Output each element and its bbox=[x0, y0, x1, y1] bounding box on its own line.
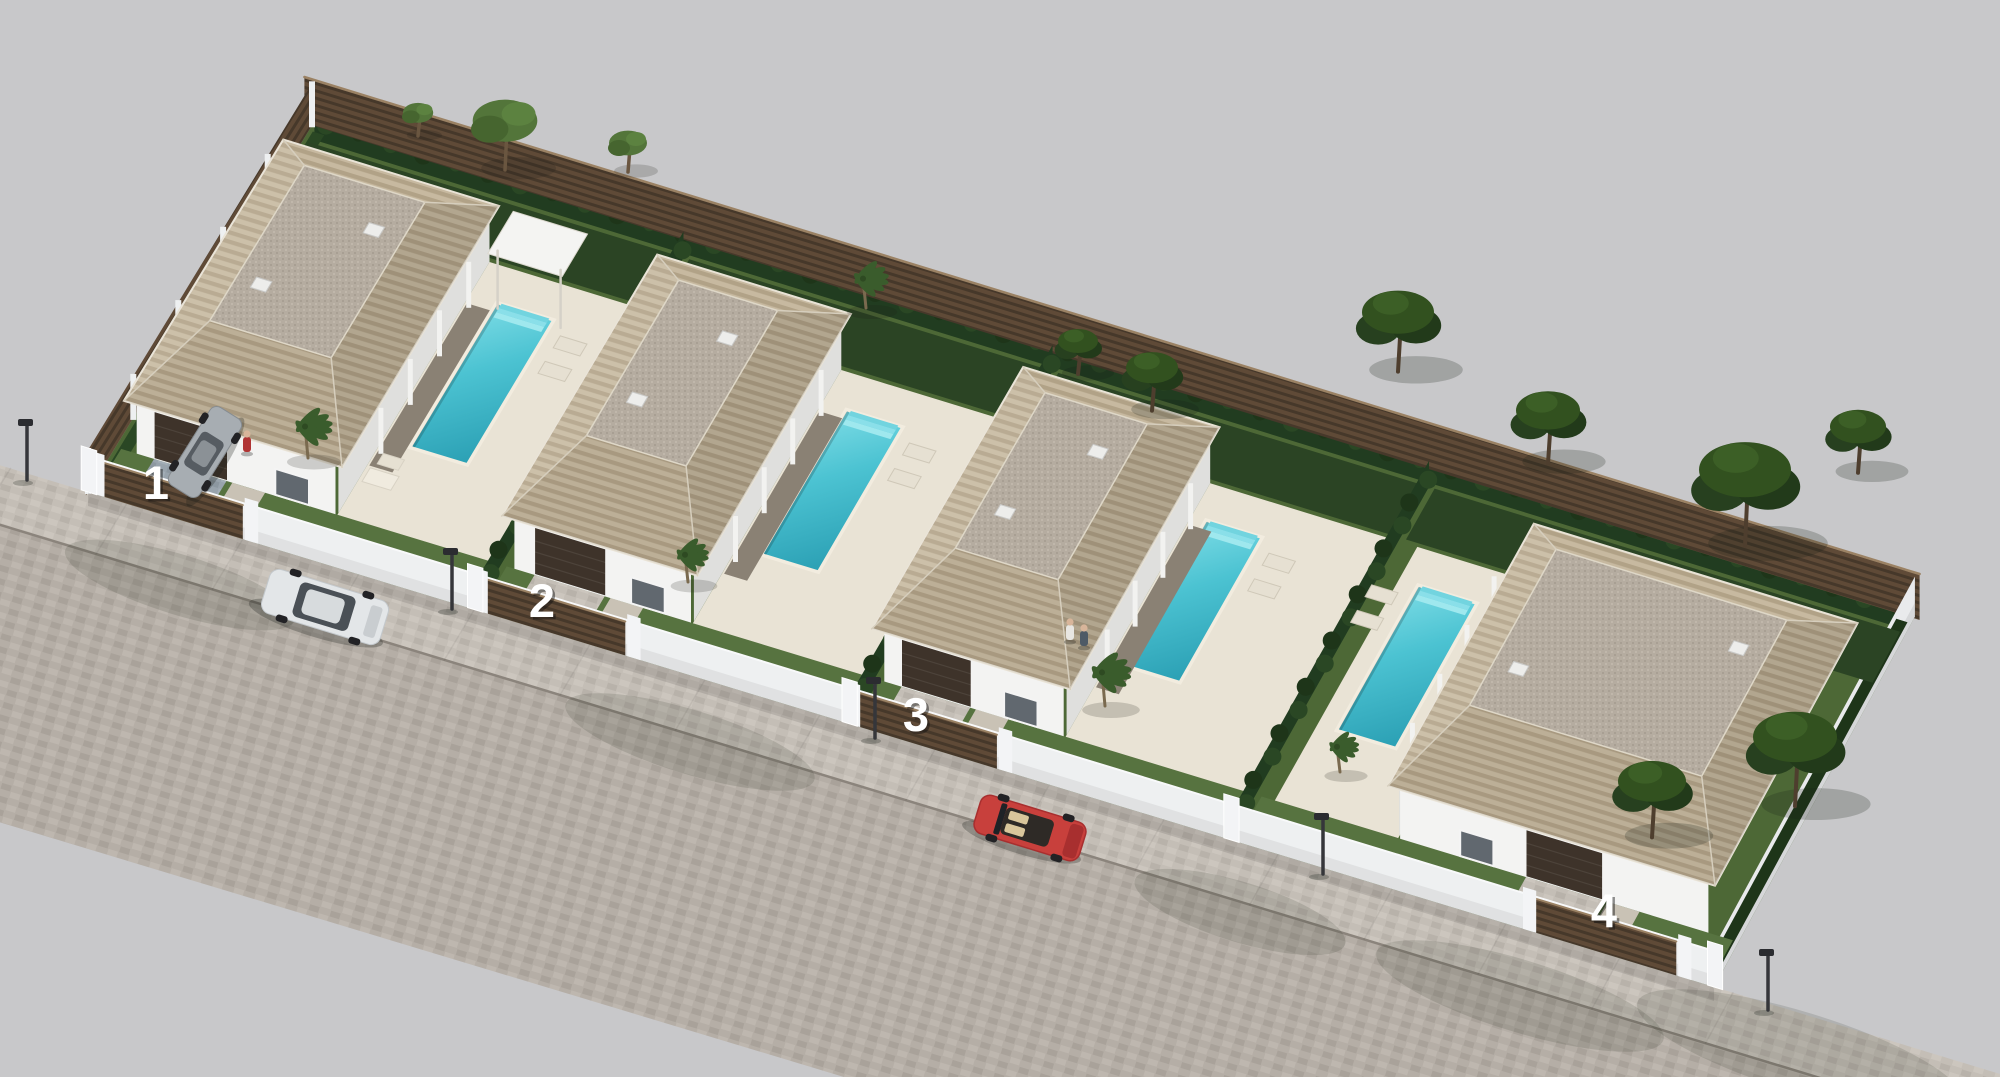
wall-pillar bbox=[842, 678, 857, 727]
porch-column bbox=[437, 310, 442, 356]
hedge-bush bbox=[1400, 494, 1418, 512]
person-shadow bbox=[1064, 640, 1076, 645]
tree-foliage bbox=[608, 140, 630, 156]
streetlight-head bbox=[443, 548, 458, 555]
tree-foliage bbox=[1713, 443, 1759, 472]
person-body bbox=[1066, 625, 1074, 640]
porch-column bbox=[466, 262, 471, 308]
wall-pillar bbox=[1523, 887, 1536, 933]
tree-foliage bbox=[416, 104, 432, 115]
streetlight-head bbox=[1759, 949, 1774, 956]
tree-shadow bbox=[1836, 461, 1909, 482]
palm-crown bbox=[682, 552, 688, 558]
tree-foliage bbox=[1064, 330, 1084, 343]
tree-shadow bbox=[1324, 770, 1367, 782]
tree-shadow bbox=[1625, 823, 1713, 849]
wall-pillar bbox=[468, 564, 483, 613]
tree-foliage bbox=[1134, 353, 1160, 370]
tree-foliage bbox=[1628, 762, 1662, 784]
streetlight-head bbox=[866, 677, 881, 684]
tree-shadow bbox=[1708, 526, 1828, 561]
tree-foliage bbox=[402, 110, 420, 123]
person-body bbox=[1080, 631, 1088, 646]
tree-shadow bbox=[287, 455, 341, 470]
tree-foliage bbox=[1766, 713, 1808, 740]
hedge-bush bbox=[490, 541, 508, 559]
tree-foliage bbox=[626, 132, 646, 146]
hedge-bush bbox=[1393, 516, 1411, 534]
hedge-bush bbox=[863, 655, 881, 673]
palm-crown bbox=[860, 276, 866, 282]
porch-column bbox=[1160, 532, 1165, 578]
tree-shadow bbox=[614, 164, 658, 177]
streetlight-shadow bbox=[1309, 874, 1329, 880]
hedge-bush bbox=[1244, 771, 1262, 789]
wall-pillar bbox=[245, 498, 259, 544]
tree-foliage bbox=[1526, 392, 1558, 412]
hedge-bush bbox=[1297, 678, 1315, 696]
person-head bbox=[1066, 618, 1073, 625]
streetlight-head bbox=[18, 419, 33, 426]
hedge-bush bbox=[1043, 355, 1061, 373]
palm-crown bbox=[302, 424, 308, 430]
hedge-bush bbox=[1316, 655, 1334, 673]
person-shadow bbox=[241, 452, 253, 457]
hedge-bush bbox=[674, 241, 692, 259]
wall-pillar bbox=[1708, 941, 1723, 990]
tree-shadow bbox=[1062, 365, 1114, 380]
tree-shadow bbox=[1522, 449, 1605, 473]
person-body bbox=[243, 437, 251, 452]
wall-pillar bbox=[627, 614, 640, 660]
palm-crown bbox=[1334, 744, 1340, 750]
tree-shadow bbox=[1082, 702, 1140, 718]
tree-shadow bbox=[1369, 356, 1463, 383]
porch-column bbox=[408, 359, 413, 405]
plot-number: 3 bbox=[903, 688, 929, 741]
porch-column bbox=[378, 408, 383, 454]
porch-column bbox=[819, 370, 824, 416]
porch-column bbox=[1188, 483, 1193, 529]
tree-foliage bbox=[1373, 292, 1409, 315]
streetlight-shadow bbox=[861, 738, 881, 744]
tree-shadow bbox=[407, 130, 442, 141]
tree-shadow bbox=[1131, 399, 1199, 419]
tree-shadow bbox=[671, 580, 718, 593]
hedge-bush bbox=[1349, 585, 1367, 603]
person-shadow bbox=[1078, 646, 1090, 651]
hedge-bush bbox=[1271, 724, 1289, 742]
wall-pillar bbox=[81, 446, 97, 495]
person-head bbox=[243, 430, 250, 437]
tree-foliage bbox=[502, 102, 536, 126]
plot-number: 2 bbox=[529, 574, 555, 627]
porch-column bbox=[790, 418, 795, 464]
streetlight-shadow bbox=[438, 609, 458, 615]
hedge-bush bbox=[1368, 562, 1386, 580]
hedge-bush bbox=[1419, 471, 1437, 489]
porch-column bbox=[733, 516, 738, 562]
plot-number: 4 bbox=[1591, 884, 1617, 937]
tree-shadow bbox=[1761, 788, 1870, 820]
plot-number: 1 bbox=[143, 456, 169, 509]
palm-crown bbox=[1099, 669, 1105, 675]
streetlight-shadow bbox=[13, 480, 33, 486]
hedge-bush bbox=[1323, 632, 1341, 650]
streetlight-head bbox=[1314, 813, 1329, 820]
porch-column bbox=[762, 467, 767, 513]
streetlight-shadow bbox=[1754, 1010, 1774, 1016]
hedge-bush bbox=[1290, 701, 1308, 719]
porch-column bbox=[1133, 581, 1138, 627]
hedge-bush bbox=[1375, 539, 1393, 557]
fence-post bbox=[309, 81, 315, 127]
tree-foliage bbox=[471, 116, 508, 143]
hedge-bush bbox=[1263, 748, 1281, 766]
aerial-render-3d: 11223344 bbox=[0, 0, 2000, 1077]
tree-shadow bbox=[481, 157, 556, 179]
wall-pillar bbox=[1678, 934, 1691, 980]
render-viewport: 11223344 bbox=[0, 0, 2000, 1077]
tree-shadow bbox=[847, 305, 897, 319]
tree-foliage bbox=[1838, 411, 1866, 429]
wall-pillar bbox=[1224, 794, 1239, 843]
wall-pillar bbox=[999, 727, 1012, 773]
person-head bbox=[1080, 624, 1087, 631]
